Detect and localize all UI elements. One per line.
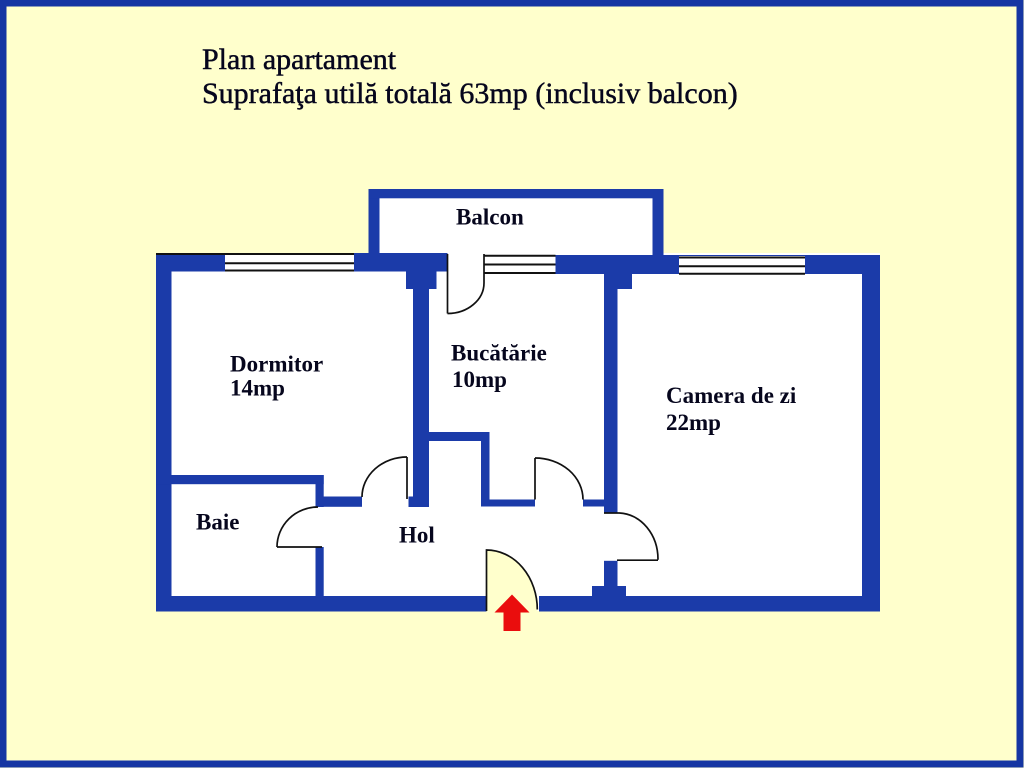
- svg-text:Bucătărie: Bucătărie: [451, 341, 547, 366]
- svg-text:Balcon: Balcon: [456, 205, 524, 230]
- svg-text:Camera de zi: Camera de zi: [666, 383, 797, 408]
- svg-text:Hol: Hol: [399, 523, 435, 548]
- svg-text:10mp: 10mp: [452, 367, 507, 392]
- svg-text:14mp: 14mp: [230, 376, 285, 401]
- svg-text:22mp: 22mp: [666, 410, 721, 435]
- svg-text:Baie: Baie: [196, 510, 239, 535]
- svg-text:Suprafaţa utilă totală 63mp (i: Suprafaţa utilă totală 63mp (inclusiv ba…: [202, 77, 738, 110]
- svg-text:Dormitor: Dormitor: [230, 352, 323, 377]
- svg-text:Plan apartament: Plan apartament: [202, 43, 397, 76]
